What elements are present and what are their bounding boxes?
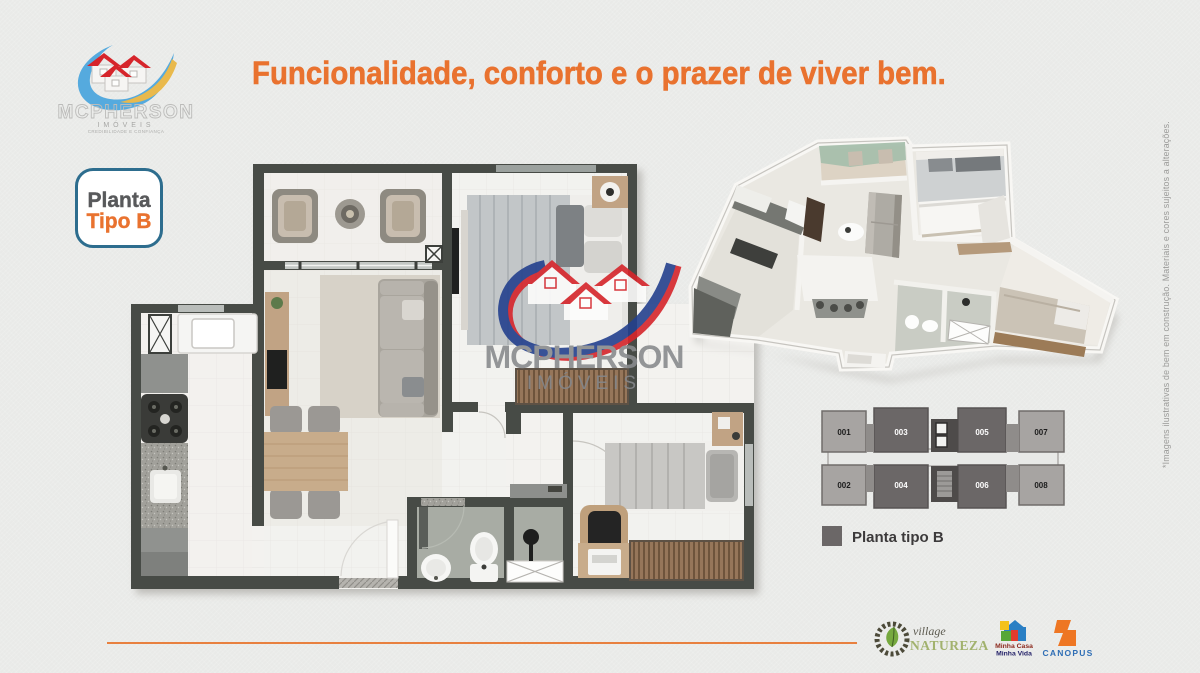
- svg-text:Minha Vida: Minha Vida: [996, 651, 1032, 658]
- svg-text:008: 008: [1034, 481, 1048, 490]
- svg-text:IMÓVEIS: IMÓVEIS: [527, 372, 641, 394]
- svg-text:CANOPUS: CANOPUS: [1043, 648, 1094, 658]
- svg-text:003: 003: [894, 428, 908, 437]
- svg-text:006: 006: [975, 481, 989, 490]
- svg-text:002: 002: [837, 481, 851, 490]
- svg-text:001: 001: [837, 428, 851, 437]
- svg-text:007: 007: [1034, 428, 1048, 437]
- svg-text:MCPHERSON: MCPHERSON: [58, 102, 195, 123]
- svg-text:Minha Casa: Minha Casa: [995, 643, 1033, 650]
- svg-text:004: 004: [894, 481, 908, 490]
- svg-text:village: village: [913, 624, 946, 638]
- svg-text:IMÓVEIS: IMÓVEIS: [97, 120, 154, 129]
- svg-text:NATUREZA: NATUREZA: [910, 638, 989, 653]
- svg-text:CREDIBILIDADE E CONFIANÇA: CREDIBILIDADE E CONFIANÇA: [88, 129, 165, 134]
- svg-text:MCPHERSON: MCPHERSON: [484, 339, 683, 375]
- svg-text:005: 005: [975, 428, 989, 437]
